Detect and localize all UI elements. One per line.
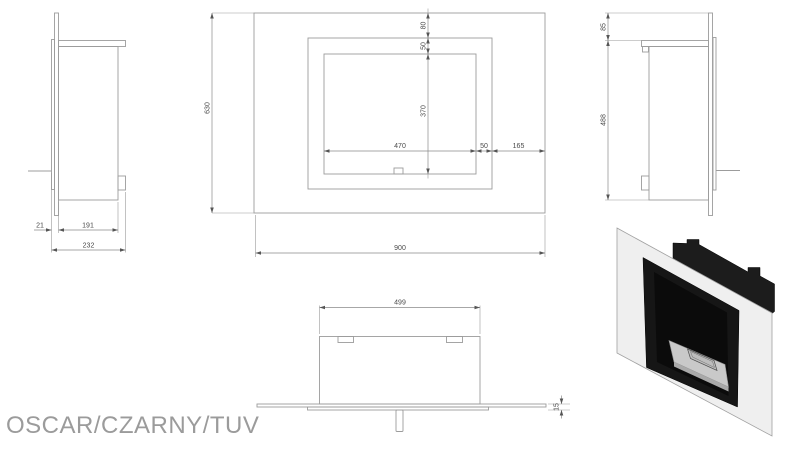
render-3d [617,228,775,436]
top-geometry [257,337,546,432]
left-side-view: 21 191 232 [28,13,126,253]
top-dimensions: 499 15 [320,300,571,419]
top-view: 499 15 [257,300,570,432]
dim-left-total-depth: 232 [83,243,95,250]
dim-right-panel-above-body: 85 [601,23,608,31]
dim-front-opening-height: 370 [421,105,428,117]
dim-top-body-width: 499 [394,300,406,307]
fireplace-dimension-drawing: 21 191 232 630 900 [0,0,800,450]
dim-left-body-depth: 191 [82,223,94,230]
right-side-geometry [642,13,741,216]
left-side-dimensions: 21 191 232 [34,173,126,253]
left-side-geometry [28,13,126,216]
right-side-dimensions: 85 488 [601,13,709,200]
dim-front-panel-height: 630 [205,102,212,114]
dim-right-body-height: 488 [601,114,608,126]
front-geometry [254,13,545,213]
technical-drawing-page: 21 191 232 630 900 [0,0,800,450]
dim-front-frame-border-right: 50 [480,143,488,150]
front-dimensions: 630 900 80 50 370 470 50 165 [205,9,546,258]
dim-left-front-offset: 21 [36,223,44,230]
dim-front-top-to-frame: 80 [421,22,428,30]
dim-front-frame-border-top: 50 [421,42,428,50]
dim-top-panel-thickness: 15 [554,403,561,411]
dim-front-opening-width: 470 [394,143,406,150]
front-view: 630 900 80 50 370 470 50 165 [205,9,546,258]
dim-front-frame-to-edge: 165 [513,143,525,150]
right-side-view: 85 488 [601,13,741,216]
dim-front-panel-width: 900 [394,245,406,252]
product-title: OSCAR/CZARNY/TUV [6,412,259,440]
